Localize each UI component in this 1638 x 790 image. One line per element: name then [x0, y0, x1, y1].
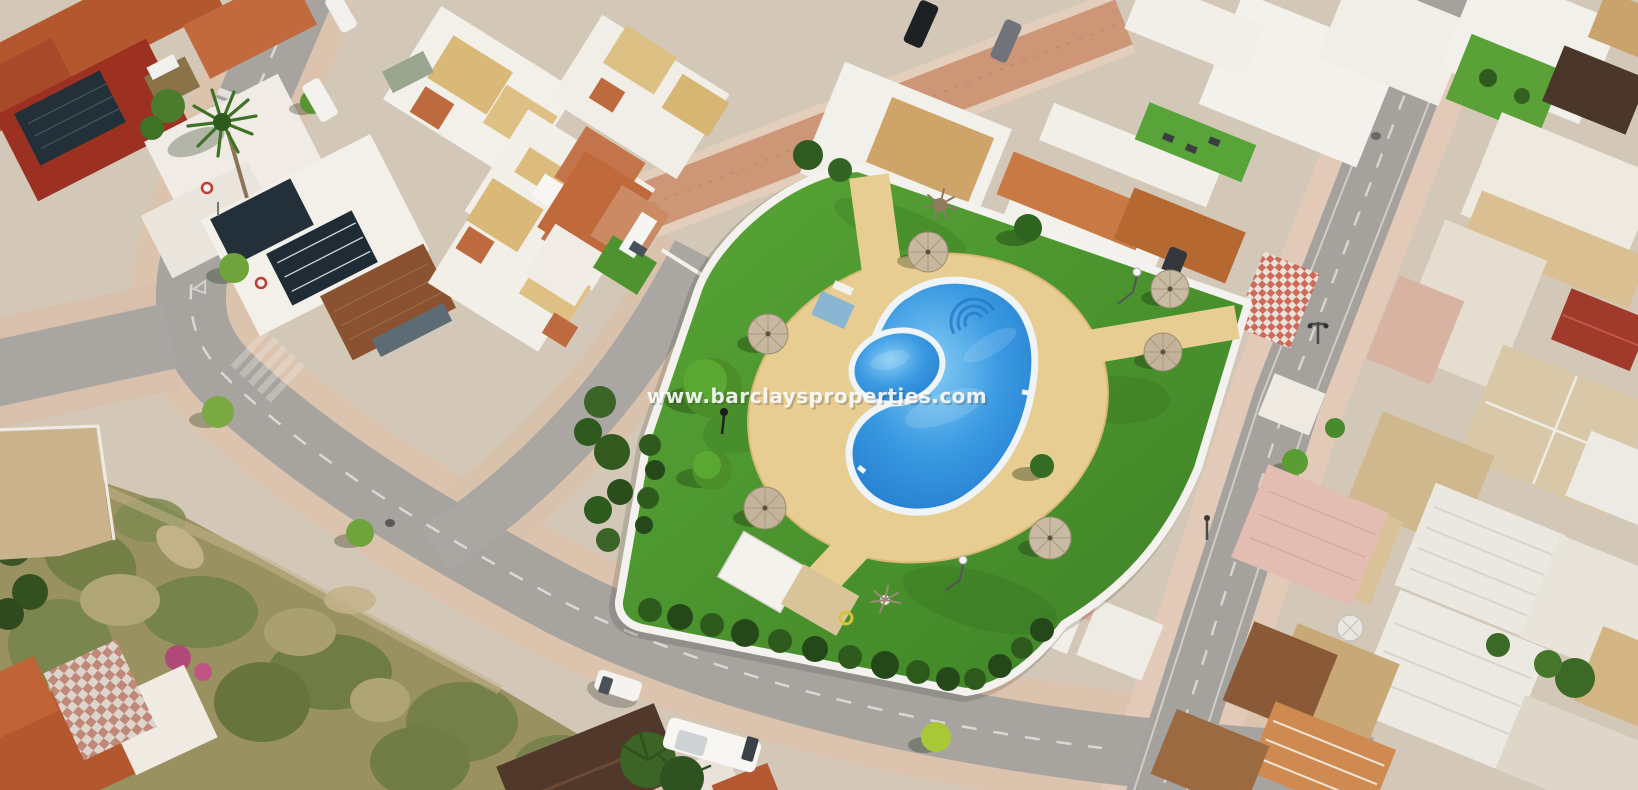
deck-path-north [869, 176, 884, 286]
walled-dirt-yard [0, 428, 112, 560]
aerial-photo-canvas: STOP [0, 0, 1638, 790]
watermark-text: www.barclaysproperties.com [647, 384, 988, 408]
round-traffic-sign [202, 183, 212, 193]
left-road-arm [0, 336, 170, 378]
aerial-photo: STOP [0, 0, 1638, 790]
watermark: www.barclaysproperties.com www.barclaysp… [647, 384, 990, 410]
